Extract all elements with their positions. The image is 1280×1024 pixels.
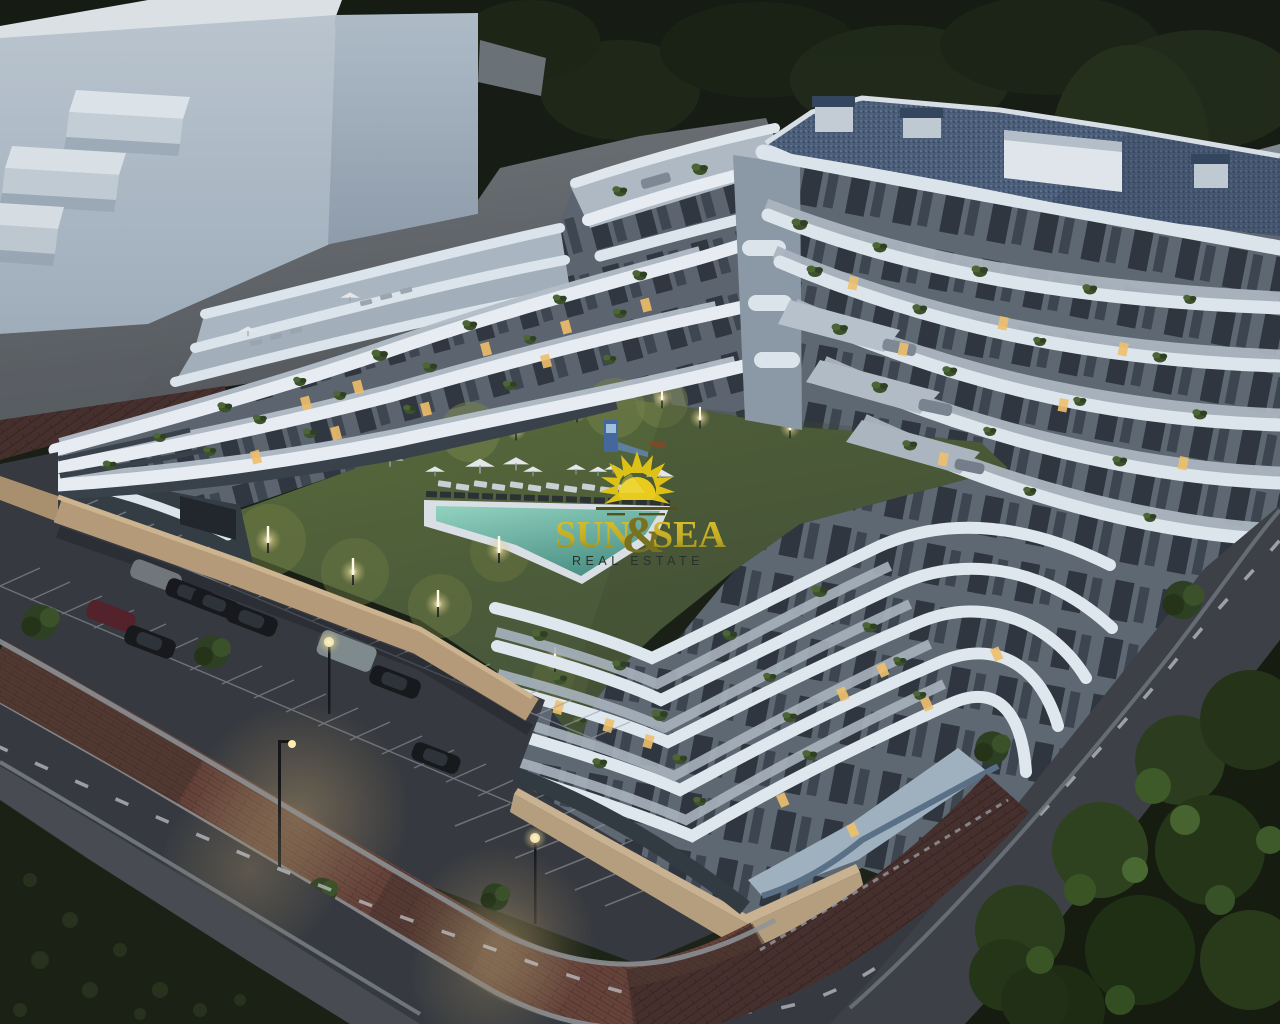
svg-text:REAL ESTATE: REAL ESTATE <box>572 554 704 568</box>
svg-text:SEA: SEA <box>652 514 726 556</box>
svg-text:SUN: SUN <box>555 514 631 556</box>
